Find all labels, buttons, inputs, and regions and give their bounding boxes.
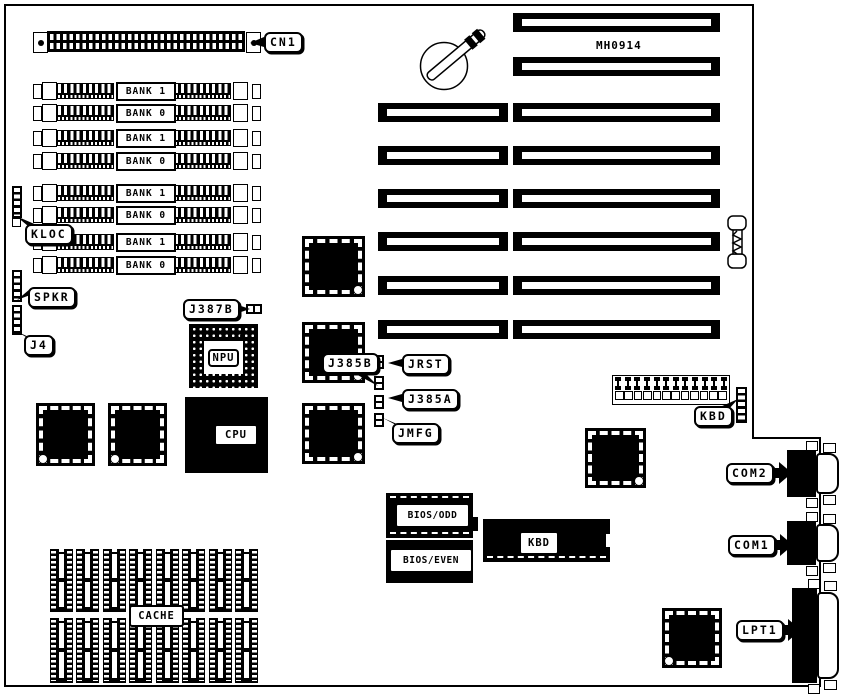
socket-notch (218, 618, 223, 621)
simm-latch (233, 256, 248, 274)
resistor-icon (681, 391, 690, 400)
component-pack (612, 375, 730, 405)
expansion-slot-opening (522, 19, 711, 26)
simm-latch (233, 206, 248, 224)
expansion-slot-opening (522, 238, 711, 245)
cache-dip-socket (50, 549, 73, 612)
capacitor-icon (644, 377, 650, 390)
expansion-slot-right (513, 276, 720, 295)
pin-teeth (58, 269, 113, 272)
socket-slot (244, 652, 249, 677)
simm-latch (233, 129, 248, 147)
socket-pins (120, 551, 125, 610)
com1-callout: COM1 (728, 535, 776, 556)
socket-notch (244, 549, 249, 552)
j385a-jumper (374, 395, 384, 409)
resistor-icon (709, 391, 718, 400)
socket-pins (157, 551, 162, 610)
socket-pins (146, 620, 151, 681)
resistor-icon (700, 391, 709, 400)
socket-pins (226, 620, 231, 681)
simm-latch (233, 104, 248, 122)
mount-hole-icon (251, 40, 257, 46)
pin-teeth (175, 269, 230, 272)
pin-teeth (175, 246, 230, 249)
socket-slot (112, 582, 117, 607)
socket-pins (77, 620, 82, 681)
socket-pins (130, 551, 135, 610)
j385b-jumper (374, 376, 384, 390)
resistor-icon (634, 391, 643, 400)
lpt1-connector (792, 588, 817, 683)
chip-pin-ring (39, 406, 92, 463)
jumper-pin (376, 397, 382, 401)
screw-tab (824, 581, 837, 591)
jumper-pin (255, 306, 260, 312)
pin-teeth (175, 117, 230, 120)
expansion-slot-opening (522, 195, 711, 202)
pin-teeth (175, 106, 230, 115)
socket-pins (120, 620, 125, 681)
npu-label: NPU (208, 349, 240, 367)
pin-teeth (58, 165, 113, 168)
npu-label-area: NPU (204, 341, 243, 374)
simm-end-cap (33, 258, 42, 273)
pin1-dot-icon (353, 285, 363, 295)
capacitor-icon (634, 377, 640, 390)
dip-pin-line (390, 532, 469, 534)
expansion-slot-opening (522, 152, 711, 159)
header-pins (14, 188, 20, 216)
pin-teeth (175, 84, 230, 93)
simm-pin-field (57, 257, 114, 273)
com2-connector (787, 450, 816, 497)
qfp-chip (585, 428, 646, 488)
simm-latch (42, 206, 57, 224)
expansion-slot-right (513, 146, 720, 165)
cn1-connector (33, 30, 259, 54)
header-pin (12, 218, 21, 227)
simm-pin-field (57, 130, 114, 146)
capacitor-icon (682, 377, 688, 390)
simm-end-cap (252, 258, 261, 273)
pin-teeth (58, 154, 113, 163)
pin-teeth (58, 246, 113, 249)
socket-pins (252, 551, 257, 610)
lpt1-dsub (817, 592, 839, 679)
pin-teeth (58, 197, 113, 200)
memory-bank-label: BANK 0 (116, 152, 176, 171)
expansion-slot-right (513, 232, 720, 251)
socket-pins (51, 620, 56, 681)
expansion-slot-right (513, 13, 720, 32)
com2-callout: COM2 (726, 463, 774, 484)
jumper-pin (376, 384, 382, 388)
screw-tab (823, 514, 836, 524)
qfp-chip (302, 236, 365, 297)
socket-slot (138, 652, 143, 677)
pin1-dot-icon (353, 452, 363, 462)
cn1-pin-field (47, 31, 245, 52)
cache-dip-socket (50, 618, 73, 683)
pin1-dot-icon (664, 656, 674, 666)
header-pins (738, 389, 745, 421)
spkr-header (12, 270, 22, 302)
socket-pins (236, 551, 241, 610)
memory-slot: BANK 0 (33, 256, 259, 274)
cache-dip-socket (209, 618, 232, 683)
simm-end-cap (33, 131, 42, 146)
socket-slot (112, 554, 117, 578)
simm-end-cap (252, 131, 261, 146)
chip-pin-ring (665, 611, 719, 665)
memory-slot: BANK 0 (33, 206, 259, 224)
expansion-slot-right (513, 103, 720, 122)
pin-teeth (175, 154, 230, 163)
capacitor-icon (625, 377, 631, 390)
simm-end-cap (33, 186, 42, 201)
socket-slot (112, 623, 117, 648)
jumper-pin (376, 415, 382, 419)
expansion-slot-left (378, 103, 508, 122)
pin-teeth (175, 186, 230, 195)
header-pins (14, 307, 20, 333)
screw-tab (824, 680, 837, 690)
cache-dip-socket (156, 549, 179, 612)
dip-pin-line (487, 556, 606, 558)
capacitor-row (615, 377, 727, 390)
bios-odd-chip: BIOS/ODD (386, 493, 473, 538)
pin-teeth (58, 117, 113, 120)
j387b-jumper (246, 304, 262, 314)
expansion-slot-opening (522, 282, 711, 289)
simm-pin-field (57, 153, 114, 169)
socket-slot (85, 652, 90, 677)
j385b-callout: J385B (322, 353, 379, 374)
kloc-callout: KLOC (25, 224, 73, 245)
socket-pins (183, 620, 188, 681)
pin1-dot-icon (110, 454, 120, 464)
socket-slot (191, 652, 196, 677)
socket-notch (191, 549, 196, 552)
fuse-icon (728, 216, 746, 268)
j387b-callout: J387B (183, 299, 240, 320)
cache-dip-socket (103, 549, 126, 612)
expansion-slot-opening (387, 195, 499, 202)
socket-slot (59, 652, 64, 677)
screw-tab (806, 566, 818, 576)
simm-pin-field (174, 207, 231, 223)
j4-header (12, 305, 22, 335)
memory-slot: BANK 0 (33, 104, 259, 122)
resistor-icon (615, 391, 624, 400)
pin-teeth (58, 131, 113, 140)
expansion-slot-left (378, 232, 508, 251)
socket-slot (165, 554, 170, 578)
socket-pins (146, 551, 151, 610)
simm-pin-field (174, 153, 231, 169)
resistor-icon (662, 391, 671, 400)
capacitor-icon (673, 377, 679, 390)
simm-pin-field (174, 257, 231, 273)
memory-slot: BANK 1 (33, 129, 259, 147)
cpu-chip: CPU (185, 397, 268, 473)
socket-slot (59, 554, 64, 578)
screw-tab (823, 443, 836, 453)
socket-notch (112, 618, 117, 621)
socket-pins (236, 620, 241, 681)
socket-notch (191, 618, 196, 621)
mount-hole-icon (38, 40, 44, 46)
pin1-dot-icon (38, 454, 48, 464)
jrst-callout: JRST (402, 354, 450, 375)
socket-slot (138, 554, 143, 578)
socket-slot (244, 554, 249, 578)
socket-slot (165, 582, 170, 607)
pin-teeth (175, 95, 230, 98)
board-id-text: MH0914 (596, 39, 642, 52)
memory-bank-label: BANK 0 (116, 206, 176, 225)
cache-dip-socket (129, 618, 152, 683)
simm-latch (42, 152, 57, 170)
simm-end-cap (33, 84, 42, 99)
connector-mount-ear (246, 32, 261, 53)
socket-notch (244, 618, 249, 621)
cn1-callout: CN1 (264, 32, 303, 53)
socket-slot (85, 582, 90, 607)
jrst-tail (388, 359, 402, 367)
socket-slot (218, 623, 223, 648)
cache-dip-socket (182, 549, 205, 612)
memory-slot: BANK 0 (33, 152, 259, 170)
pin-teeth (58, 219, 113, 222)
jumper-pin (376, 403, 382, 407)
simm-latch (42, 104, 57, 122)
plcc-chip (108, 403, 167, 466)
motherboard-diagram: BANK 1BANK 0BANK 1BANK 0BANK 1BANK 0BANK… (0, 0, 841, 700)
expansion-slot-left (378, 320, 508, 339)
socket-slot (165, 652, 170, 677)
expansion-slot-opening (387, 152, 499, 159)
resistor-icon (643, 391, 652, 400)
screw-tab (806, 512, 818, 522)
cache-dip-socket (103, 618, 126, 683)
expansion-slot-right (513, 320, 720, 339)
kloc-header (12, 186, 22, 218)
qfp-chip (662, 608, 722, 668)
socket-pins (199, 620, 204, 681)
resistor-icon (671, 391, 680, 400)
jmfg-jumper (374, 413, 384, 427)
pin-teeth (58, 186, 113, 195)
memory-bank-label: BANK 1 (116, 233, 176, 252)
cache-dip-socket (76, 618, 99, 683)
socket-slot (218, 652, 223, 677)
pin-teeth (58, 95, 113, 98)
simm-end-cap (252, 208, 261, 223)
resistor-icon (653, 391, 662, 400)
expansion-slot-right (513, 57, 720, 76)
simm-latch (233, 184, 248, 202)
pin1-dot-icon (634, 476, 644, 486)
bios-odd-label: BIOS/ODD (395, 503, 470, 528)
expansion-slot-left (378, 146, 508, 165)
screw-tab (806, 498, 818, 508)
simm-pin-field (57, 105, 114, 121)
socket-notch (165, 549, 170, 552)
socket-notch (85, 549, 90, 552)
jumper-pin (376, 421, 382, 425)
memory-bank-label: BANK 1 (116, 184, 176, 203)
capacitor-icon (663, 377, 669, 390)
connector-mount-ear (33, 32, 48, 53)
cpu-label: CPU (214, 424, 258, 446)
socket-pins (173, 551, 178, 610)
pin-teeth (175, 258, 230, 267)
socket-notch (138, 549, 143, 552)
socket-slot (191, 623, 196, 648)
cache-dip-socket (235, 618, 258, 683)
socket-pins (93, 620, 98, 681)
simm-latch (233, 152, 248, 170)
kbd-chip-label: KBD (519, 531, 559, 555)
screw-tab (823, 563, 836, 573)
spkr-callout: SPKR (28, 287, 76, 308)
cache-dip-socket (182, 618, 205, 683)
chip-pin-ring (111, 406, 164, 463)
socket-slot (112, 652, 117, 677)
expansion-slot-opening (387, 109, 499, 116)
resistor-icon (690, 391, 699, 400)
pin-teeth (58, 84, 113, 93)
socket-pins (51, 551, 56, 610)
simm-latch (233, 82, 248, 100)
capacitor-icon (615, 377, 621, 390)
bios-even-label: BIOS/EVEN (389, 548, 473, 573)
expansion-slot-opening (387, 326, 499, 333)
pin-teeth (175, 235, 230, 244)
simm-pin-field (174, 130, 231, 146)
memory-slot: BANK 1 (33, 82, 259, 100)
socket-pins (104, 620, 109, 681)
bios-even-chip: BIOS/EVEN (386, 540, 473, 583)
cache-dip-socket (209, 549, 232, 612)
lpt1-callout: LPT1 (736, 620, 784, 641)
socket-notch (59, 618, 64, 621)
socket-pins (104, 551, 109, 610)
simm-pin-field (174, 234, 231, 250)
socket-slot (244, 582, 249, 607)
capacitor-icon (711, 377, 717, 390)
socket-notch (218, 549, 223, 552)
chip-tab (471, 517, 478, 531)
memory-bank-label: BANK 1 (116, 82, 176, 101)
cache-label: CACHE (129, 605, 184, 627)
memory-slot: BANK 1 (33, 184, 259, 202)
socket-slot (138, 582, 143, 607)
socket-pins (173, 620, 178, 681)
cache-dip-socket (76, 549, 99, 612)
simm-latch (42, 256, 57, 274)
npu-socket: NPU (189, 324, 258, 388)
socket-pins (210, 551, 215, 610)
capacitor-icon (702, 377, 708, 390)
socket-pins (130, 620, 135, 681)
keyboard-controller-chip: KBD (483, 519, 610, 562)
expansion-slot-right (513, 189, 720, 208)
dip-pin-line (390, 496, 469, 498)
cache-dip-socket (156, 618, 179, 683)
simm-end-cap (252, 154, 261, 169)
pin-teeth (58, 106, 113, 115)
socket-slot (59, 623, 64, 648)
simm-pin-field (174, 83, 231, 99)
simm-pin-field (174, 185, 231, 201)
pin-teeth (58, 142, 113, 145)
socket-slot (191, 582, 196, 607)
socket-pins (199, 551, 204, 610)
pin-row (50, 43, 242, 49)
socket-slot (85, 554, 90, 578)
expansion-slot-opening (522, 109, 711, 116)
com1-connector (787, 521, 816, 565)
socket-slot (59, 582, 64, 607)
pin-teeth (175, 219, 230, 222)
simm-end-cap (252, 186, 261, 201)
memory-bank-label: BANK 0 (116, 256, 176, 275)
screw-tab (823, 495, 836, 505)
pin-teeth (58, 208, 113, 217)
socket-pins (252, 620, 257, 681)
simm-end-cap (33, 154, 42, 169)
socket-pins (157, 620, 162, 681)
socket-pins (93, 551, 98, 610)
jmfg-callout: JMFG (392, 423, 440, 444)
pin-teeth (58, 258, 113, 267)
resistor-icon (624, 391, 633, 400)
pin1-dot-icon (240, 334, 244, 338)
socket-pins (226, 551, 231, 610)
com2-dsub (816, 453, 839, 494)
screw-tab (808, 684, 820, 694)
socket-notch (85, 618, 90, 621)
jumper-pin (248, 306, 253, 312)
simm-latch (42, 82, 57, 100)
resistor-icon (718, 391, 727, 400)
chip-notch (606, 534, 612, 547)
kbd-callout: KBD (694, 406, 733, 427)
expansion-slot-opening (387, 282, 499, 289)
simm-latch (42, 184, 57, 202)
simm-end-cap (252, 84, 261, 99)
battery-icon (421, 27, 488, 90)
memory-bank-label: BANK 0 (116, 104, 176, 123)
socket-pins (77, 551, 82, 610)
qfp-chip (302, 403, 365, 464)
socket-slot (218, 554, 223, 578)
capacitor-icon (721, 377, 727, 390)
capacitor-icon (654, 377, 660, 390)
jumper-pin (376, 378, 382, 382)
simm-end-cap (33, 106, 42, 121)
screw-tab (806, 441, 818, 451)
expansion-slot-left (378, 276, 508, 295)
simm-end-cap (252, 106, 261, 121)
socket-pins (210, 620, 215, 681)
j385a-tail (388, 394, 402, 402)
expansion-slot-opening (522, 326, 711, 333)
socket-slot (244, 623, 249, 648)
